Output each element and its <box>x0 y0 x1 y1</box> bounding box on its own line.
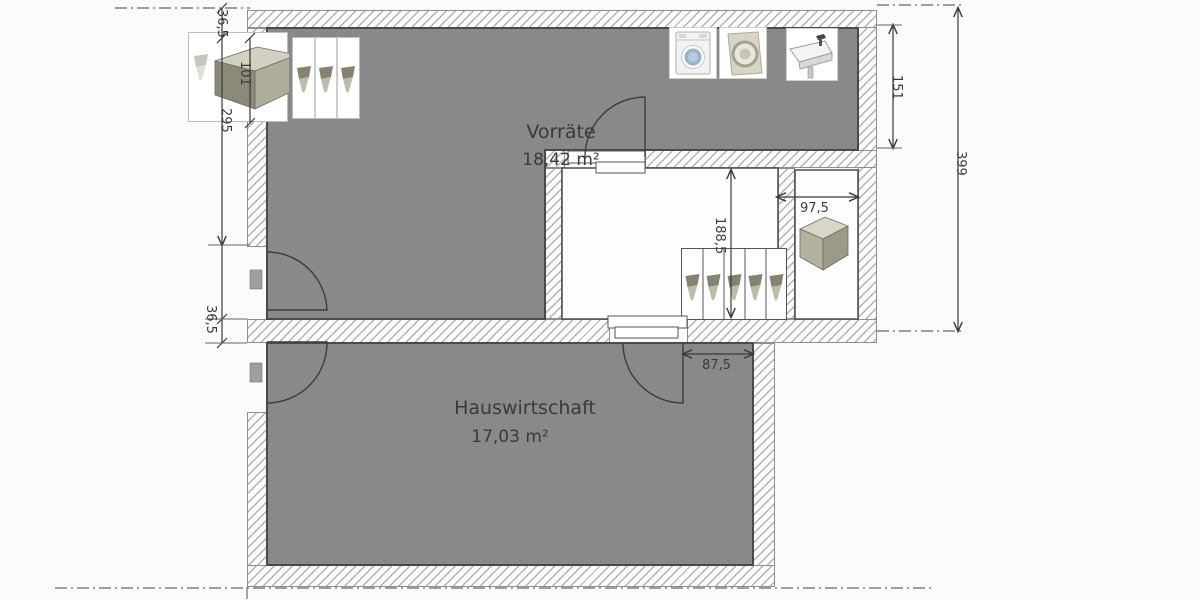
shelf-item-box-5[interactable] <box>681 248 787 320</box>
door-hauswirtschaft <box>623 343 683 403</box>
wall-storage-top-b <box>645 150 877 168</box>
dryer-box[interactable] <box>719 27 767 79</box>
room-label-hauswirtschaft: Hauswirtschaft <box>437 397 613 419</box>
wall-utility-right <box>753 343 775 587</box>
wall-left-lower <box>247 412 267 587</box>
floor-plan: Vorräte 18,42 m² Hauswirtschaft 17,03 m²… <box>0 0 1200 600</box>
shelf-item-box-3[interactable] <box>292 37 360 119</box>
dim-vorraete-height: 295 <box>218 108 233 133</box>
sink-box[interactable] <box>786 28 838 81</box>
room-label-vorraete: Vorräte <box>501 121 621 143</box>
room-area-hauswirtschaft: 17,03 m² <box>422 427 598 447</box>
dim-cabinet-run: 101 <box>237 61 252 86</box>
dim-right-nook-height: 151 <box>889 75 904 100</box>
shelf-5-compartments-icon <box>682 249 786 319</box>
rooms-layer <box>0 0 1200 600</box>
sink-icon <box>787 29 837 80</box>
wall-top <box>247 10 877 28</box>
dim-door-offset: 87,5 <box>702 358 731 373</box>
niche-cabinet-3d-icon <box>797 213 853 275</box>
wall-right-outer <box>858 27 877 320</box>
dim-overall-height: 399 <box>953 151 968 176</box>
wall-middle-right <box>687 319 877 343</box>
annotation-layer <box>0 0 1200 600</box>
wall-middle-left <box>247 319 610 343</box>
dim-top-wall-thickness: 36,5 <box>214 9 229 38</box>
door-thresholds <box>568 151 687 338</box>
door-left-lower <box>267 342 327 403</box>
wall-storage-left <box>545 168 562 319</box>
dryer-icon <box>720 28 766 78</box>
dim-middle-wall-thickness: 36,5 <box>203 305 218 334</box>
dim-storage-depth: 188,5 <box>712 217 727 254</box>
washing-machine-icon <box>670 28 716 78</box>
wall-bottom <box>247 565 775 587</box>
room-hauswirtschaft-floor <box>267 343 753 565</box>
room-area-vorraete: 18,42 m² <box>501 150 621 170</box>
shelf-3-compartments-icon <box>293 38 359 118</box>
niche-cabinet-item[interactable] <box>797 213 853 275</box>
washing-machine-box[interactable] <box>669 27 717 79</box>
dim-niche-width: 97,5 <box>800 201 829 216</box>
door-left-upper <box>267 252 327 310</box>
